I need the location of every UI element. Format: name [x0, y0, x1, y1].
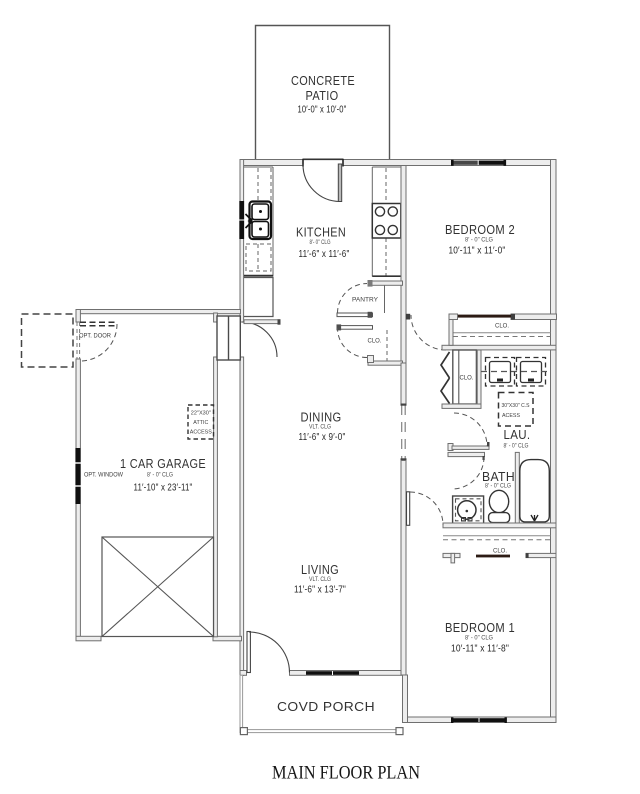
- svg-text:PANTRY: PANTRY: [352, 297, 379, 304]
- svg-text:8′ - 0" CLG: 8′ - 0" CLG: [504, 444, 529, 450]
- svg-text:LIVING: LIVING: [301, 562, 339, 577]
- svg-text:BATH: BATH: [482, 469, 515, 484]
- svg-text:BEDROOM 2: BEDROOM 2: [445, 222, 515, 237]
- svg-text:11′-10" x 23′-11": 11′-10" x 23′-11": [134, 483, 193, 494]
- svg-text:CLO.: CLO.: [495, 323, 509, 330]
- svg-text:10′-0" x 10′-0": 10′-0" x 10′-0": [298, 105, 347, 116]
- svg-text:CLO.: CLO.: [368, 338, 382, 345]
- svg-text:8′ - 0" CLG: 8′ - 0" CLG: [465, 636, 493, 642]
- svg-text:8′ - 0" CLG: 8′ - 0" CLG: [465, 238, 493, 244]
- svg-text:11′-6" x 13′-7": 11′-6" x 13′-7": [294, 585, 346, 596]
- svg-text:KITCHEN: KITCHEN: [296, 225, 346, 240]
- svg-text:DINING: DINING: [301, 410, 342, 425]
- svg-text:OPT. WINDOW: OPT. WINDOW: [84, 472, 124, 479]
- svg-text:CLO.: CLO.: [460, 375, 474, 382]
- svg-text:11′-6" x 9′-0": 11′-6" x 9′-0": [299, 432, 346, 443]
- svg-text:ACESS: ACESS: [502, 413, 520, 419]
- svg-text:MAIN FLOOR PLAN: MAIN FLOOR PLAN: [272, 764, 420, 784]
- svg-text:COVD PORCH: COVD PORCH: [277, 699, 375, 714]
- svg-text:CONCRETE: CONCRETE: [291, 73, 355, 88]
- svg-text:ACCESS: ACCESS: [190, 430, 212, 436]
- svg-text:11′-6" x 11′-6": 11′-6" x 11′-6": [299, 249, 350, 260]
- svg-text:LAU.: LAU.: [504, 427, 531, 442]
- svg-text:8′- 0" CLG: 8′- 0" CLG: [310, 240, 331, 246]
- svg-text:1 CAR GARAGE: 1 CAR GARAGE: [120, 456, 206, 471]
- svg-text:VLT. CLG: VLT. CLG: [309, 577, 331, 583]
- svg-text:8′ - 0" CLG: 8′ - 0" CLG: [147, 473, 173, 479]
- svg-text:10′-11" x 11′-0": 10′-11" x 11′-0": [449, 246, 506, 257]
- svg-text:VLT. CLG: VLT. CLG: [309, 425, 331, 431]
- svg-text:30"X30" C.S: 30"X30" C.S: [502, 403, 530, 409]
- svg-text:10′-11" x 11′-8": 10′-11" x 11′-8": [451, 644, 509, 655]
- svg-text:8′ - 0" CLG: 8′ - 0" CLG: [485, 484, 511, 490]
- svg-text:BEDROOM 1: BEDROOM 1: [445, 620, 515, 635]
- svg-text:22"X30": 22"X30": [191, 411, 211, 417]
- svg-text:ATTIC: ATTIC: [193, 420, 208, 426]
- svg-text:OPT. DOOR: OPT. DOOR: [79, 333, 111, 340]
- svg-text:PATIO: PATIO: [306, 88, 339, 103]
- svg-text:CLO.: CLO.: [493, 548, 507, 555]
